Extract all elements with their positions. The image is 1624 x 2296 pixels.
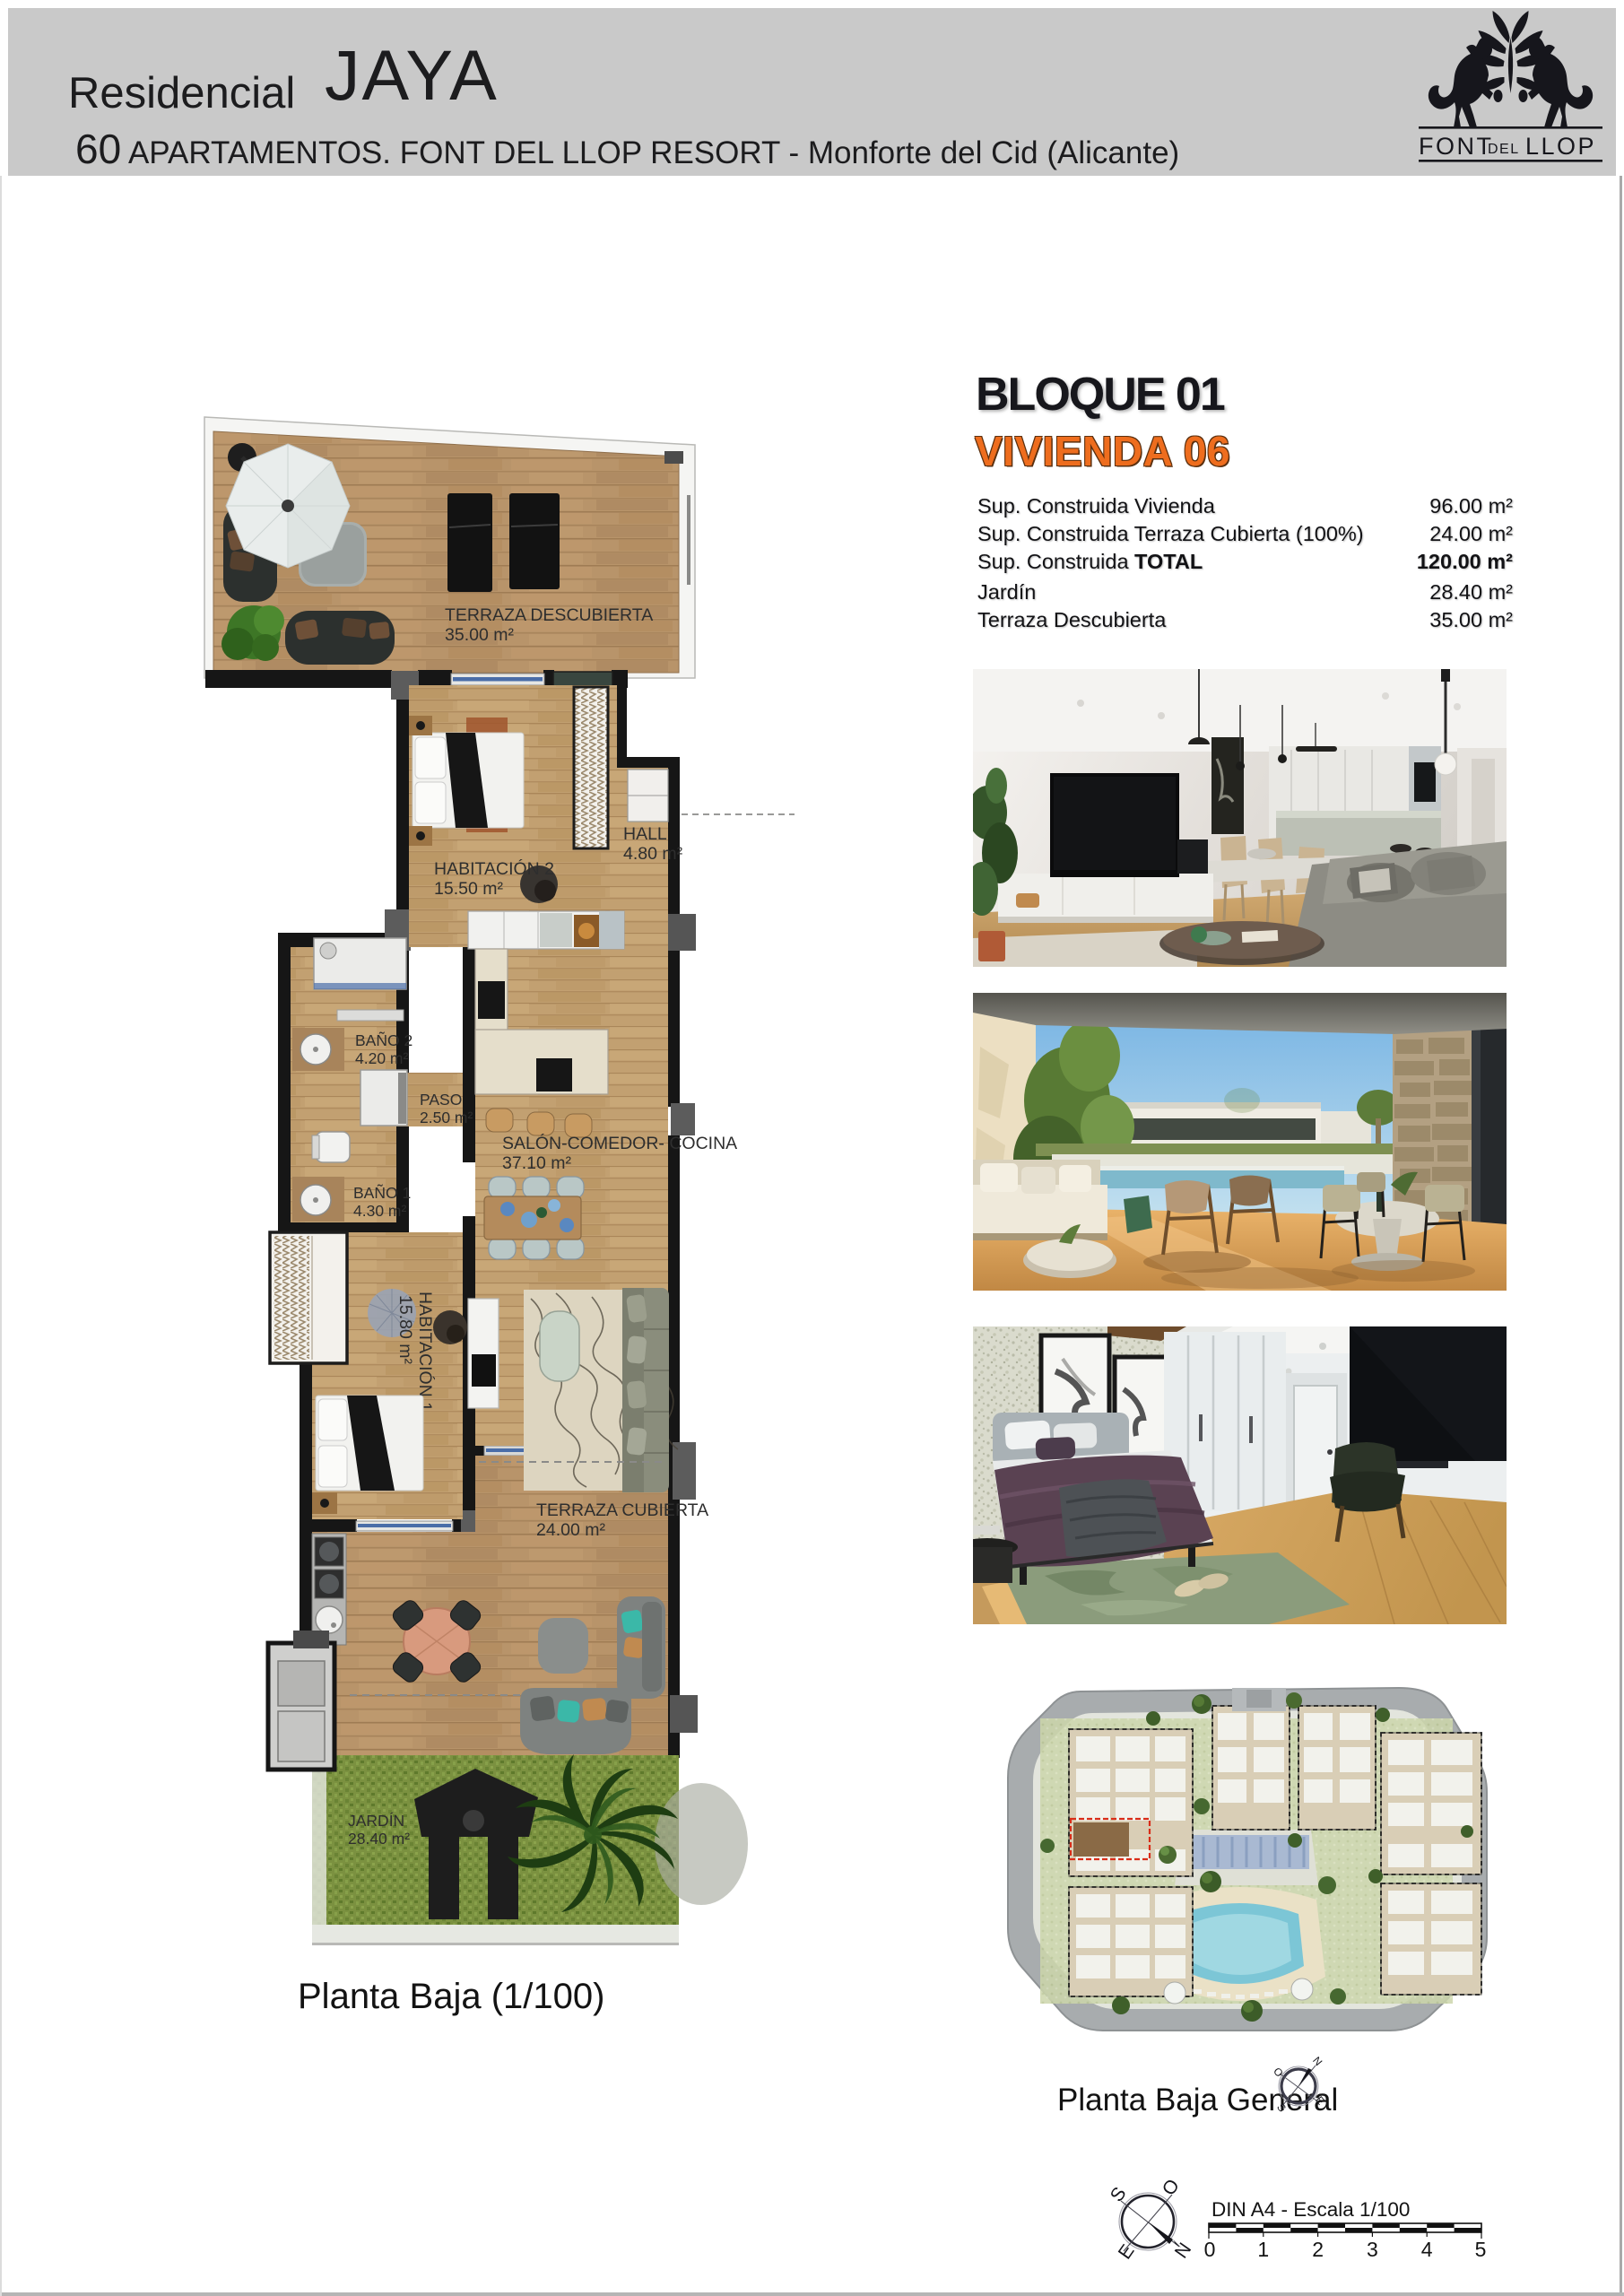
svg-text:37.10 m²: 37.10 m² [502, 1153, 571, 1173]
svg-text:BAÑO 1: BAÑO 1 [353, 1183, 411, 1202]
svg-text:1: 1 [1257, 2238, 1269, 2261]
svg-text:E: E [1313, 2093, 1327, 2107]
svg-text:28.40 m²: 28.40 m² [348, 1830, 410, 1848]
svg-text:N: N [1310, 2054, 1324, 2068]
svg-text:BAÑO 2: BAÑO 2 [355, 1031, 413, 1049]
svg-text:24.00 m²: 24.00 m² [536, 1520, 605, 1540]
svg-text:HABITACIÓN 1: HABITACIÓN 1 [415, 1291, 436, 1412]
svg-text:4.80 m²: 4.80 m² [623, 844, 683, 864]
svg-text:HALL: HALL [623, 824, 667, 844]
svg-text:5: 5 [1475, 2238, 1487, 2261]
svg-text:4.30 m²: 4.30 m² [353, 1202, 406, 1220]
svg-text:O: O [1159, 2176, 1184, 2200]
svg-text:3: 3 [1367, 2238, 1378, 2261]
svg-text:DEL: DEL [1488, 142, 1520, 157]
svg-text:SALÓN-COMEDOR- COCINA: SALÓN-COMEDOR- COCINA [502, 1133, 737, 1153]
svg-text:4: 4 [1421, 2238, 1433, 2261]
svg-text:4.20 m²: 4.20 m² [355, 1049, 408, 1067]
svg-text:S: S [1274, 2100, 1289, 2114]
svg-text:15.80 m²: 15.80 m² [395, 1295, 415, 1364]
svg-text:TERRAZA DESCUBIERTA: TERRAZA DESCUBIERTA [445, 605, 653, 625]
svg-text:FONT: FONT [1419, 133, 1494, 160]
svg-text:35.00 m²: 35.00 m² [445, 625, 514, 645]
svg-text:JARDÍN: JARDÍN [348, 1812, 404, 1830]
svg-text:TERRAZA CUBIERTA: TERRAZA CUBIERTA [536, 1500, 708, 1520]
svg-text:PASO: PASO [420, 1091, 462, 1109]
svg-text:15.50 m²: 15.50 m² [434, 879, 503, 899]
svg-text:0: 0 [1204, 2238, 1216, 2261]
svg-text:HABITACIÓN 2: HABITACIÓN 2 [434, 858, 554, 879]
svg-text:2.50 m²: 2.50 m² [420, 1109, 473, 1126]
svg-text:2: 2 [1312, 2238, 1324, 2261]
svg-text:LLOP: LLOP [1525, 133, 1596, 160]
